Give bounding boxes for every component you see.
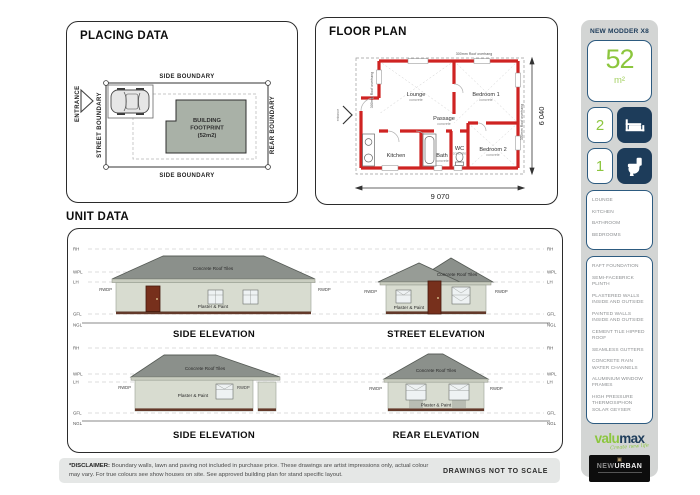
dimension-height: 6 040 xyxy=(537,107,546,126)
room-kitchen: Kitchen xyxy=(387,153,406,159)
roof-label: Concrete Roof Tiles xyxy=(185,366,226,371)
toilet-icon xyxy=(617,148,652,184)
room-bath-finish: concrete xyxy=(435,159,448,163)
roof-label: Concrete Roof Tiles xyxy=(416,368,457,373)
feature-item: PAINTED WALLS INSIDE AND OUTSIDE xyxy=(592,312,647,324)
footprint-label-1: BUILDING xyxy=(193,118,222,124)
feature-item: PLASTERED WALLS INSIDE AND OUTSIDE xyxy=(592,294,647,306)
features-list: RAFT FOUNDATION SEMI-FACEBRICK PLINTH PL… xyxy=(586,256,653,424)
overhang-note-top: 300mm Roof overhang xyxy=(456,52,493,56)
area-unit: m² xyxy=(588,75,651,86)
unit-data-panel: RH WPL LH GFL NGL RH WPL LH GFL NGL RH W… xyxy=(67,228,563,453)
bedroom-count: 2 xyxy=(587,107,613,143)
feature-item: ALUMINIUM WINDOW FRAMES xyxy=(592,377,647,389)
plan-entrance-arrow-icon xyxy=(343,106,352,124)
dimension-width: 9 070 xyxy=(431,192,450,201)
feature-item: HIGH PRESSURE THERMOSIPHON SOLAR GEYSER xyxy=(592,395,647,414)
plan-entrance-label: entrance xyxy=(336,109,340,122)
bathroom-count: 1 xyxy=(587,148,613,184)
rwdp-label: RWDP xyxy=(364,289,377,294)
unit-data-title: UNIT DATA xyxy=(66,211,129,223)
spec-sidebar: NEW MODDER X8 52 m² 2 1 LOUNGE xyxy=(581,20,658,477)
overhang-note-right: 300mm Roof overhang xyxy=(520,104,524,141)
level-label: LH xyxy=(73,380,79,385)
area-value: 52 xyxy=(588,41,651,77)
building-footprint: BUILDING FOOTPRINT (52m2) xyxy=(166,100,246,153)
feature-item: SEMI-FACEBRICK PLINTH xyxy=(592,276,647,288)
wall-label: Plaster & Paint xyxy=(178,393,209,398)
newurban-logo: ▣ NEWURBAN xyxy=(589,455,650,482)
street-boundary-label: STREET BOUNDARY xyxy=(97,92,103,158)
footprint-label-3: (52m2) xyxy=(198,133,217,139)
level-label: LH xyxy=(73,280,79,285)
bedroom-count-row: 2 xyxy=(587,107,652,143)
rwdp-label: RWDP xyxy=(99,287,112,292)
elevation-rear: Concrete Roof Tiles Plaster & Paint RWDP… xyxy=(369,354,503,411)
placing-data-panel: PLACING DATA ENTRANCE SIDE BOUNDARY SIDE… xyxy=(66,21,298,203)
level-label: NGL xyxy=(547,323,557,328)
level-label: RH xyxy=(547,247,553,252)
level-label: GFL xyxy=(73,411,82,416)
model-name: NEW MODDER X8 xyxy=(583,28,656,35)
level-label: NGL xyxy=(73,421,83,426)
wall-label: Plaster & Paint xyxy=(198,304,229,309)
elevation-side-2: Concrete Roof Tiles Plaster & Paint RWDP… xyxy=(118,355,280,411)
level-label: NGL xyxy=(73,323,83,328)
elevation-title-3: SIDE ELEVATION xyxy=(173,430,255,441)
site-plan-drawing: ENTRANCE SIDE BOUNDARY SIDE BOUNDARY STR… xyxy=(67,42,296,202)
elevations-drawing: RH WPL LH GFL NGL RH WPL LH GFL NGL RH W… xyxy=(68,229,561,451)
rwdp-label: RWDP xyxy=(118,385,131,390)
level-label: GFL xyxy=(547,411,556,416)
level-label: RH xyxy=(73,247,79,252)
side-boundary-bottom-label: SIDE BOUNDARY xyxy=(159,173,214,179)
level-label: GFL xyxy=(73,312,82,317)
room-wc-finish: concrete xyxy=(453,152,466,156)
floor-plan-panel: FLOOR PLAN xyxy=(315,17,558,205)
roof-label: Concrete Roof Tiles xyxy=(437,272,478,277)
rooms-list-item: LOUNGE xyxy=(592,198,647,204)
disclaimer-bar: *DISCLAIMER: Boundary walls, lawn and pa… xyxy=(59,458,560,483)
entrance-label: ENTRANCE xyxy=(75,85,81,122)
level-label: WPL xyxy=(73,372,83,377)
wall-label: Plaster & Paint xyxy=(394,305,425,310)
rear-boundary-label: REAR BOUNDARY xyxy=(270,96,276,154)
newurban-logo-new: NEW xyxy=(597,463,615,470)
level-label: RH xyxy=(73,346,79,351)
level-label: LH xyxy=(547,280,553,285)
scale-note: DRAWINGS NOT TO SCALE xyxy=(443,467,548,478)
rwdp-label: RWDP xyxy=(490,386,503,391)
rwdp-label: RWDP xyxy=(369,386,382,391)
bathroom-count-row: 1 xyxy=(587,148,652,184)
side-boundary-top-label: SIDE BOUNDARY xyxy=(159,74,214,80)
elevation-side-1: Concrete Roof Tiles Plaster & Paint RWDP… xyxy=(99,256,331,314)
rwdp-label: RWDP xyxy=(318,287,331,292)
level-label: GFL xyxy=(547,312,556,317)
bed-icon xyxy=(617,107,652,143)
car-icon xyxy=(108,85,153,118)
room-bedroom1-finish: concrete xyxy=(479,98,492,102)
level-label: RH xyxy=(547,346,553,351)
room-lounge-finish: concrete xyxy=(409,98,422,102)
rwdp-label: RWDP xyxy=(237,385,250,390)
rooms-list-item: KITCHEN xyxy=(592,210,647,216)
overhang-note-left: 300mm Roof overhang xyxy=(370,72,374,109)
disclaimer-label: *DISCLAIMER: xyxy=(69,463,110,469)
disclaimer-text: Boundary walls, lawn and paving not incl… xyxy=(69,463,428,478)
room-bedroom2-finish: concrete xyxy=(486,153,499,157)
floor-plan-drawing: Lounge concrete Bedroom 1 concrete Passa… xyxy=(316,18,556,204)
level-label: WPL xyxy=(547,372,557,377)
elevation-title-1: SIDE ELEVATION xyxy=(173,329,255,340)
feature-item: CONCRETE RAIN WATER CHANNELS xyxy=(592,359,647,371)
entrance-arrow-icon xyxy=(81,90,93,112)
feature-item: SEAMLESS GUTTERS xyxy=(592,348,647,354)
level-label: WPL xyxy=(73,270,83,275)
level-label: WPL xyxy=(547,270,557,275)
rooms-list: LOUNGE KITCHEN BATHROOM BEDROOMS xyxy=(586,190,653,250)
rooms-list-item: BEDROOMS xyxy=(592,233,647,239)
elevation-street: Concrete Roof Tiles Plaster & Paint RWDP… xyxy=(364,258,508,314)
elevation-title-2: STREET ELEVATION xyxy=(387,329,485,340)
room-passage-finish: concrete xyxy=(437,122,450,126)
placing-data-title: PLACING DATA xyxy=(80,30,169,42)
level-label: NGL xyxy=(547,421,557,426)
newurban-logo-urban: URBAN xyxy=(615,463,643,470)
feature-item: RAFT FOUNDATION xyxy=(592,264,647,270)
rooms-list-item: BATHROOM xyxy=(592,221,647,227)
newurban-strapline-rule xyxy=(598,472,642,473)
footprint-label-2: FOOTPRINT xyxy=(190,126,224,132)
wall-label: Plaster & Paint xyxy=(421,403,452,408)
roof-label: Concrete Roof Tiles xyxy=(193,266,234,271)
elevation-title-4: REAR ELEVATION xyxy=(393,430,480,441)
rwdp-label: RWDP xyxy=(495,289,508,294)
area-box: 52 m² xyxy=(587,40,652,102)
feature-item: CEMENT TILE HIPPED ROOF xyxy=(592,330,647,342)
level-label: LH xyxy=(547,380,553,385)
